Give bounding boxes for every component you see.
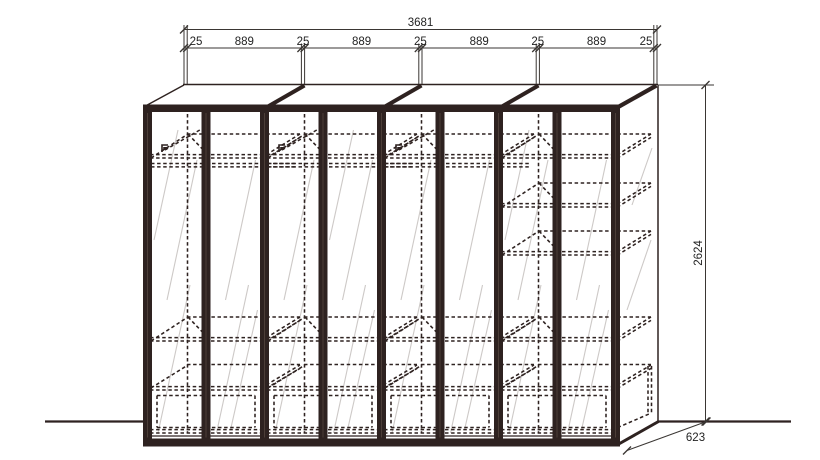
glass-hatch-line [334,285,366,433]
glass-hatch-line [627,240,651,310]
glass-hatch-line [231,310,258,430]
glass-hatch-line [330,130,354,240]
dimension-tick [623,447,631,455]
depth-dimension-label: 623 [686,432,705,444]
glass-hatch-line [460,160,490,300]
glass-hatch-line [343,160,373,300]
segment-dimension-label: 889 [235,36,254,48]
wardrobe-drawing-canvas: 368125889258892588925889252624623 [0,0,820,460]
top-left-edge [145,85,185,107]
glass-hatch-line [509,285,541,433]
glass-hatch-line [217,285,249,433]
segment-dimension-label: 25 [190,36,203,48]
glass-hatch-line [582,310,609,430]
glass-hatch-line [348,310,375,430]
segment-dimension-label: 25 [640,36,653,48]
wardrobe-technical-drawing: 368125889258892588925889252624623 [0,0,820,460]
top-rail [143,105,620,113]
glass-hatch-line [568,285,600,433]
drawer-box-left-diagonal [268,365,305,388]
rail-depth-line [282,127,322,150]
total-width-dimension-label: 3681 [408,17,434,29]
glass-hatch-line [284,160,314,300]
glass-hatch-line [392,285,424,433]
glass-hatch-line [505,130,529,240]
glass-hatch-line [275,285,307,433]
cabinet-structure [45,85,791,447]
bottom-rail [143,439,620,447]
glass-hatch-line [518,160,548,300]
drawer-box-left-diagonal [385,365,422,388]
top-right-edge [616,86,657,109]
glass-hatch-line [154,130,178,240]
interior-hidden-lines [150,114,652,433]
segment-dimension-label: 889 [470,36,489,48]
height-dimension-label: 2624 [693,240,705,266]
segment-dimension-label: 25 [531,36,544,48]
segment-dimension-label: 889 [352,36,371,48]
drawer-box-left-diagonal [151,365,188,388]
glass-hatch-line [577,160,607,300]
glass-hatch-line [401,160,431,300]
segment-dimension-label: 889 [587,36,606,48]
glass-hatch-line [158,285,190,433]
glass-hatching [154,130,652,433]
glass-hatch-line [226,160,256,300]
segment-dimension-label: 25 [297,36,310,48]
segment-dimension-label: 25 [414,36,427,48]
rail-depth-line [399,127,439,150]
drawer-box-left-diagonal [502,365,539,388]
glass-hatch-line [465,310,492,430]
glass-hatch-line [451,285,483,433]
glass-hatch-line [167,160,197,300]
rail-depth-line [165,127,205,150]
